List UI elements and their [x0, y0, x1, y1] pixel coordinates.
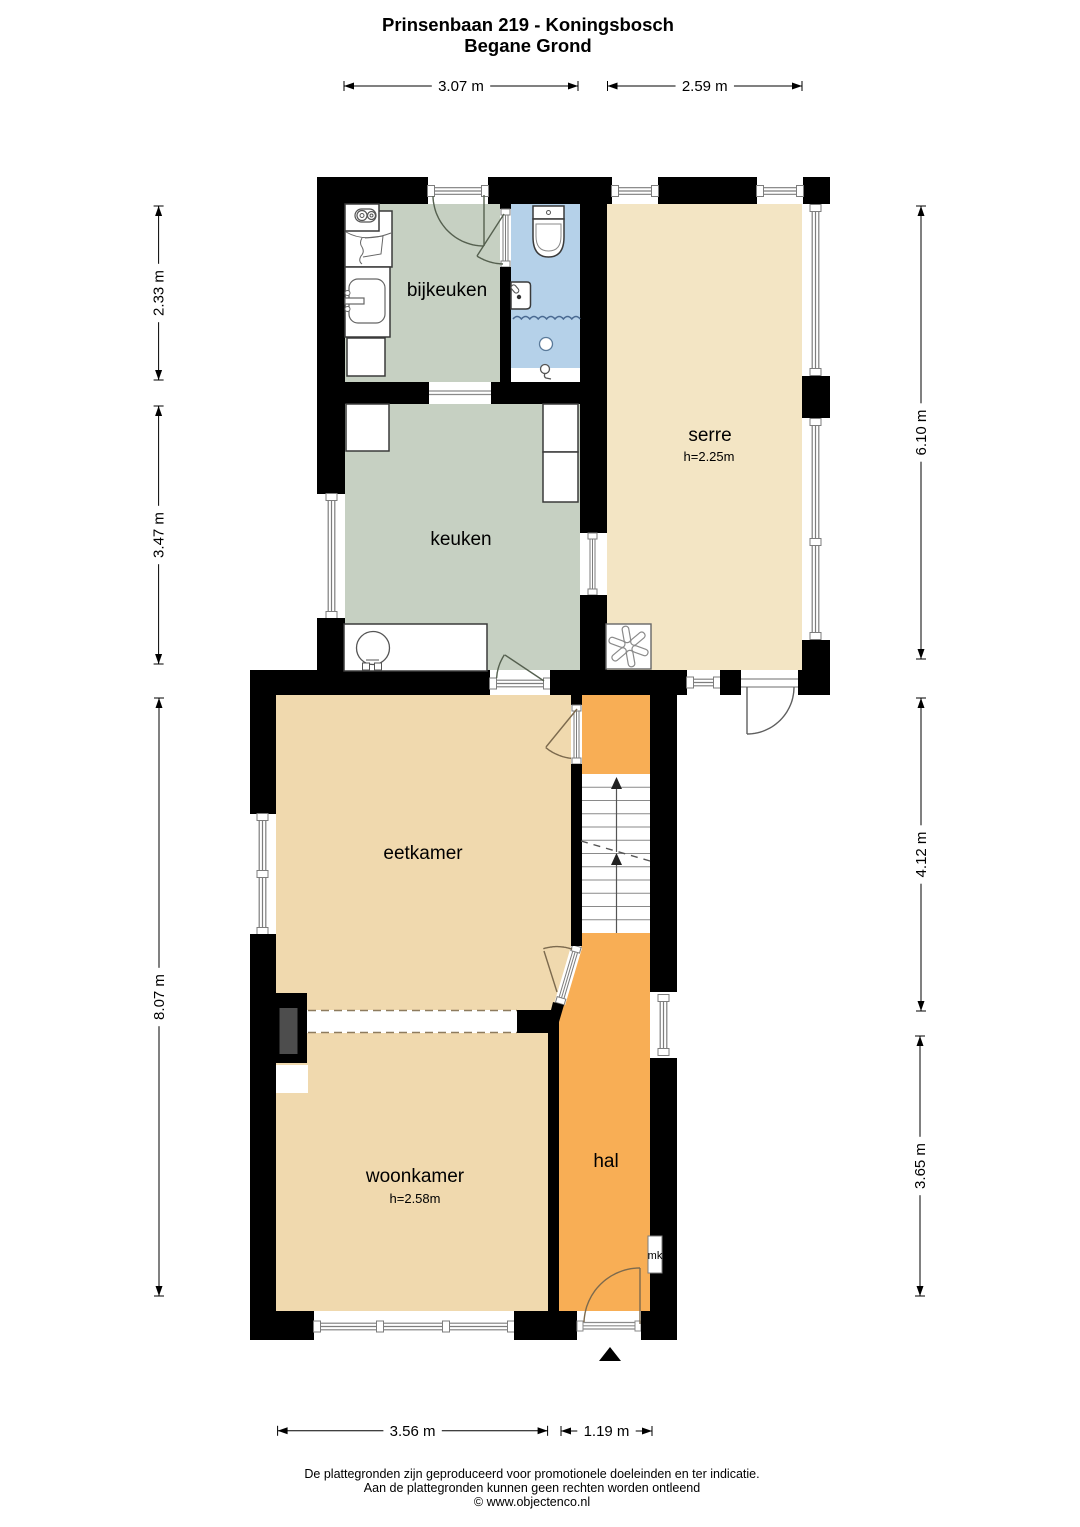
svg-text:mk: mk: [648, 1250, 663, 1262]
svg-text:hal: hal: [593, 1151, 618, 1172]
svg-text:woonkamer: woonkamer: [365, 1166, 465, 1187]
svg-text:Aan de plattegronden kunnen ge: Aan de plattegronden kunnen geen rechten…: [364, 1481, 700, 1495]
svg-text:Prinsenbaan 219 - Koningsbosch: Prinsenbaan 219 - Koningsbosch: [382, 14, 674, 35]
svg-text:h=2.58m: h=2.58m: [390, 1191, 441, 1206]
svg-text:4.12 m: 4.12 m: [913, 832, 930, 878]
svg-text:8.07 m: 8.07 m: [151, 974, 168, 1020]
svg-text:© www.objectenco.nl: © www.objectenco.nl: [474, 1495, 590, 1509]
svg-text:De plattegronden zijn geproduc: De plattegronden zijn geproduceerd voor …: [304, 1467, 759, 1481]
svg-text:6.10 m: 6.10 m: [913, 410, 930, 456]
svg-text:2.59 m: 2.59 m: [682, 78, 728, 95]
svg-text:3.65 m: 3.65 m: [912, 1143, 929, 1189]
svg-text:2.33 m: 2.33 m: [151, 270, 168, 316]
svg-text:1.19 m: 1.19 m: [584, 1423, 630, 1440]
svg-text:eetkamer: eetkamer: [383, 843, 463, 864]
svg-text:keuken: keuken: [430, 529, 491, 550]
svg-text:Begane Grond: Begane Grond: [464, 35, 591, 56]
svg-text:3.47 m: 3.47 m: [151, 512, 168, 558]
svg-text:h=2.25m: h=2.25m: [684, 449, 735, 464]
svg-text:serre: serre: [688, 425, 731, 446]
svg-text:bijkeuken: bijkeuken: [407, 280, 487, 301]
svg-text:3.56 m: 3.56 m: [390, 1423, 436, 1440]
svg-text:3.07 m: 3.07 m: [438, 78, 484, 95]
